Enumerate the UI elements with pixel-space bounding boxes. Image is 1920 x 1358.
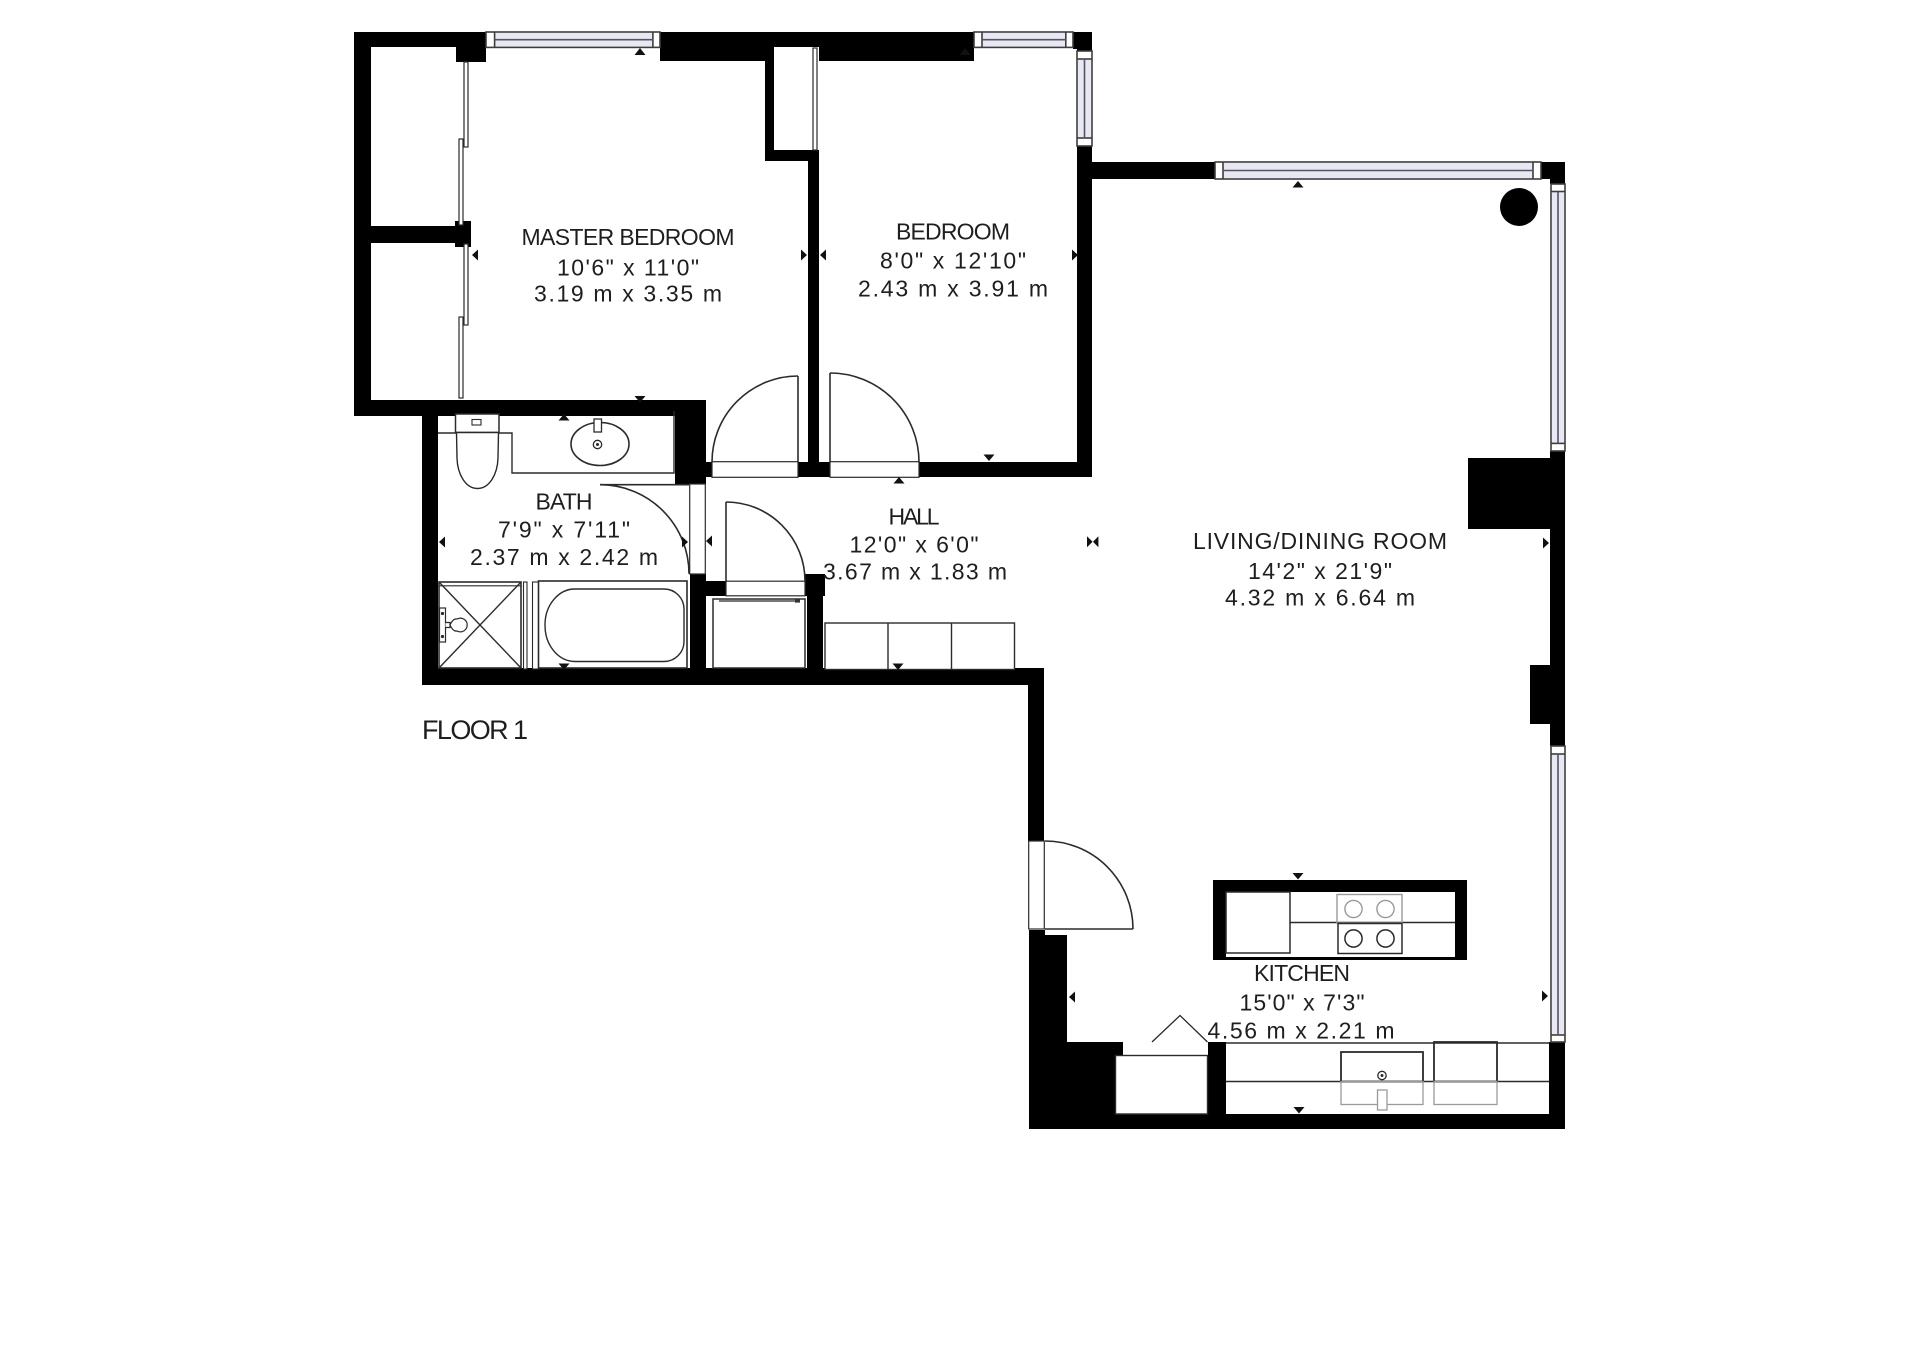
- svg-text:HALL: HALL: [889, 504, 940, 530]
- svg-text:8'0" x 12'10": 8'0" x 12'10": [880, 248, 1026, 274]
- svg-text:15'0" x 7'3": 15'0" x 7'3": [1240, 990, 1365, 1016]
- svg-text:10'6" x 11'0": 10'6" x 11'0": [557, 255, 699, 281]
- svg-text:BATH: BATH: [536, 489, 593, 515]
- svg-text:LIVING/DINING ROOM: LIVING/DINING ROOM: [1193, 528, 1447, 554]
- svg-text:MASTER BEDROOM: MASTER BEDROOM: [522, 224, 735, 250]
- svg-text:FLOOR 1: FLOOR 1: [422, 715, 528, 745]
- svg-text:BEDROOM: BEDROOM: [896, 219, 1010, 245]
- svg-text:2.37 m x 2.42 m: 2.37 m x 2.42 m: [470, 544, 658, 570]
- svg-text:14'2" x 21'9": 14'2" x 21'9": [1248, 558, 1392, 584]
- svg-text:3.19 m x 3.35 m: 3.19 m x 3.35 m: [534, 281, 722, 307]
- svg-text:4.56 m x 2.21 m: 4.56 m x 2.21 m: [1208, 1018, 1395, 1044]
- svg-text:3.67 m x 1.83 m: 3.67 m x 1.83 m: [823, 559, 1007, 585]
- svg-text:KITCHEN: KITCHEN: [1254, 960, 1350, 986]
